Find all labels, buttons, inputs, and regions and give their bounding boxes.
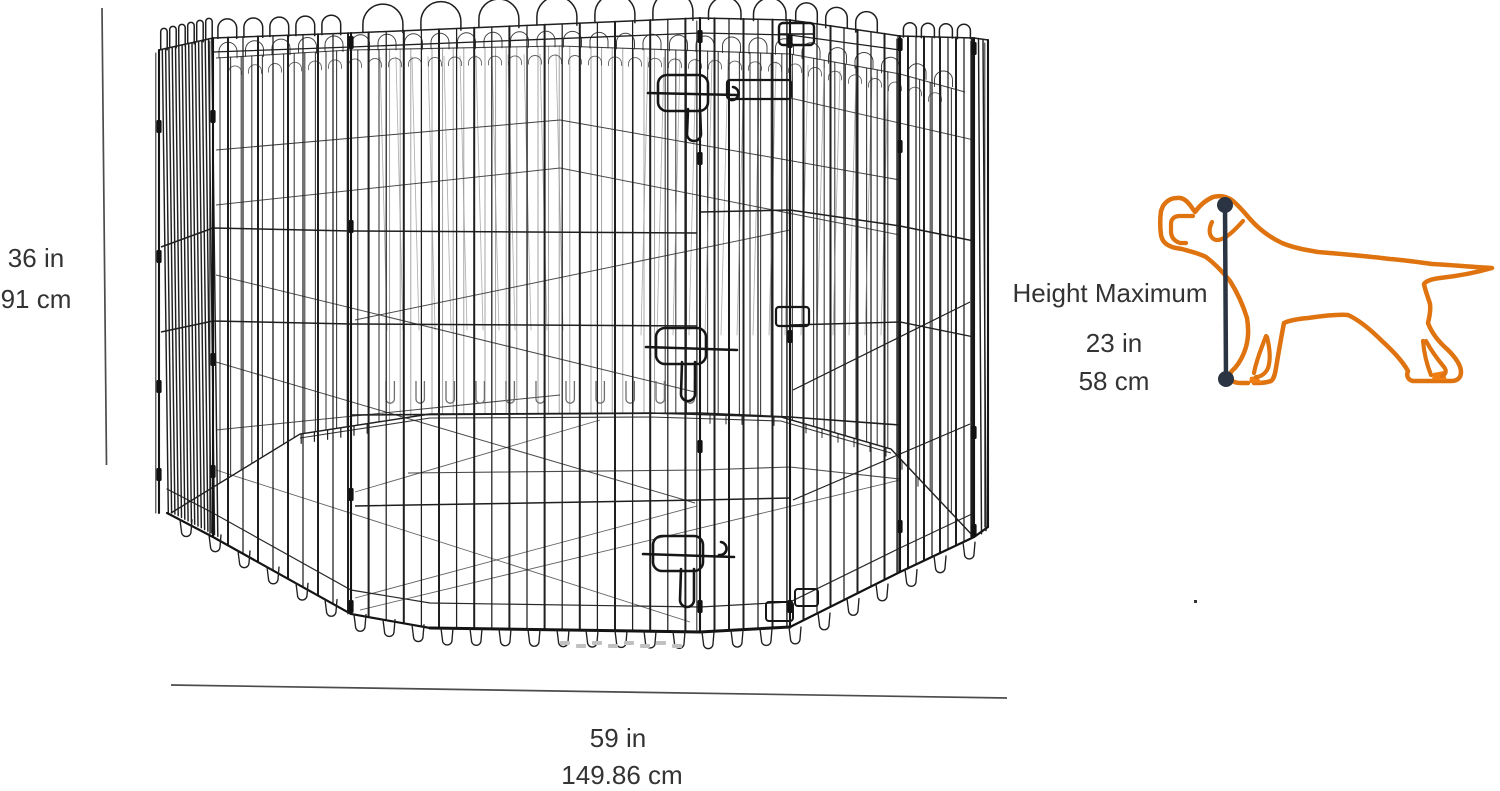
svg-text:91 cm: 91 cm	[1, 284, 72, 314]
svg-text:36 in: 36 in	[8, 243, 64, 273]
svg-text:23 in: 23 in	[1086, 328, 1142, 358]
svg-text:Height Maximum: Height Maximum	[1012, 278, 1207, 308]
svg-text:59 in: 59 in	[590, 723, 646, 753]
svg-text:58 cm: 58 cm	[1079, 366, 1150, 396]
svg-text:149.86 cm: 149.86 cm	[561, 760, 682, 786]
